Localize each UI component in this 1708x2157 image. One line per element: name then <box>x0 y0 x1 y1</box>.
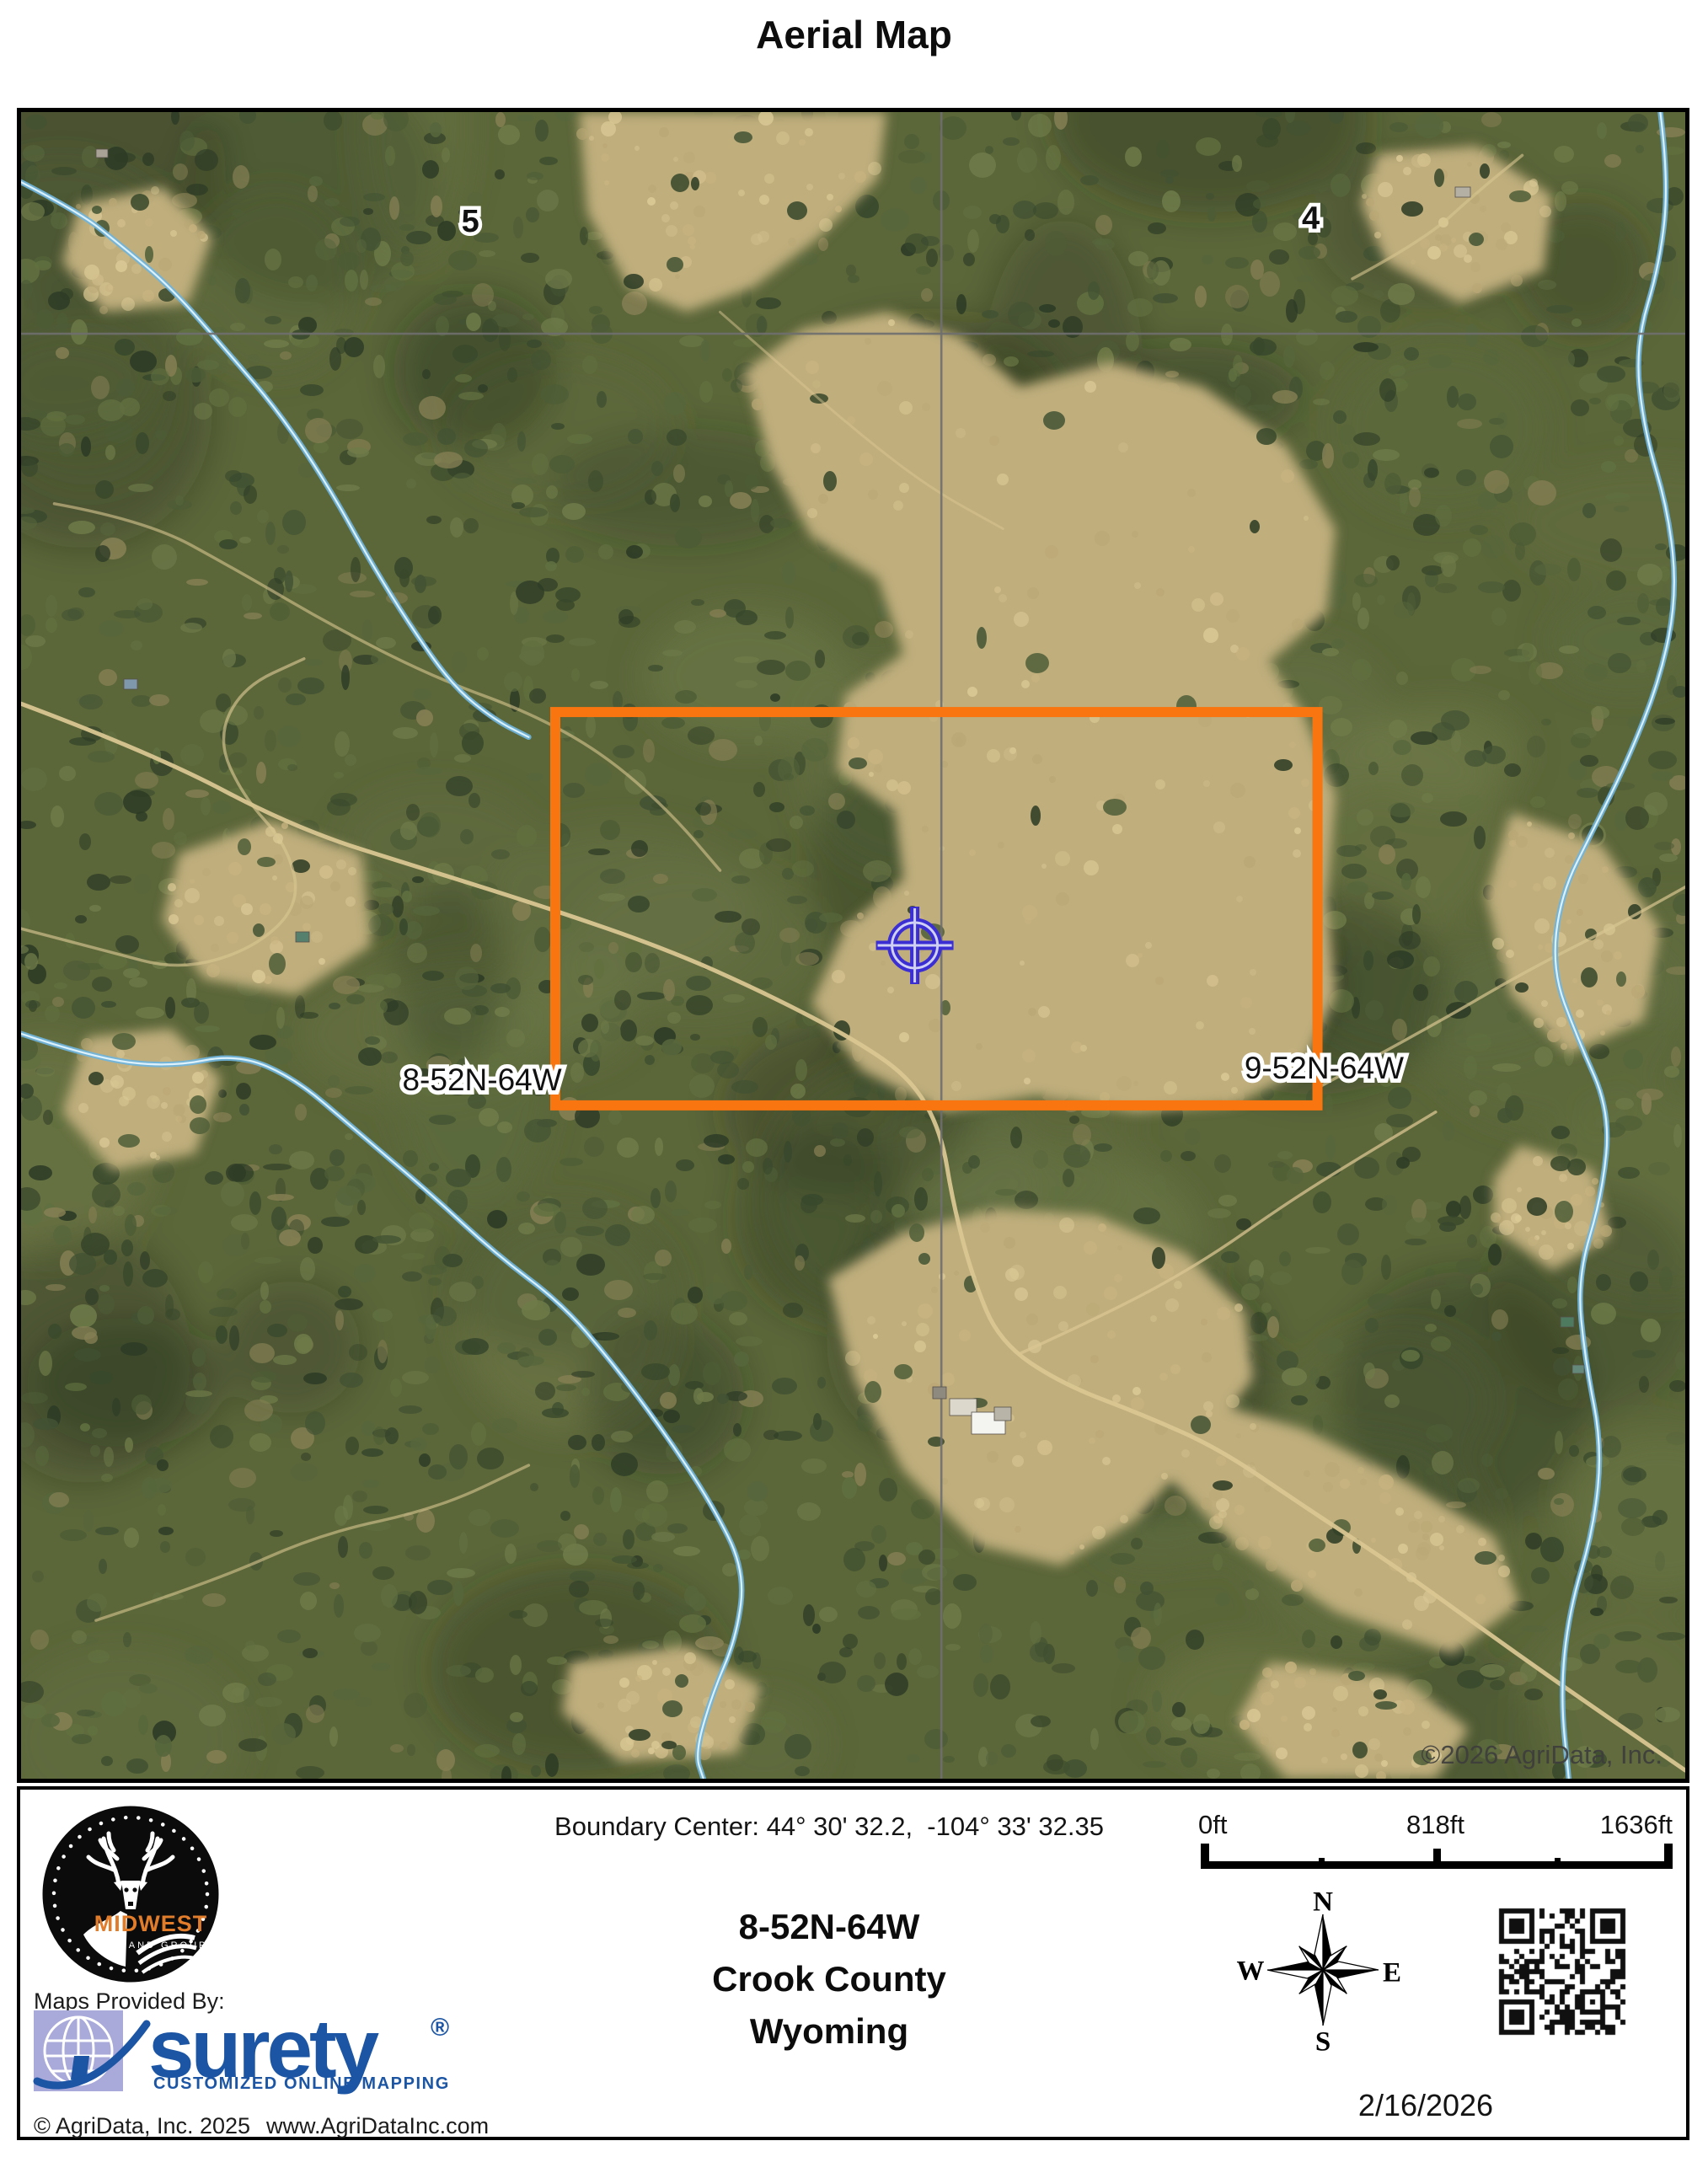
surety-logo-globe <box>34 2009 152 2093</box>
section-number-4: 4 <box>1302 201 1320 237</box>
compass-star-icon <box>1260 1907 1386 2033</box>
scale-label-middle: 818ft <box>1406 1810 1464 1840</box>
globe-icon <box>34 2010 147 2091</box>
agridata-copyright: © AgriData, Inc. 2025 <box>34 2113 250 2139</box>
compass-rose: N W E S <box>1205 1887 1404 2064</box>
county-label: Crook County <box>492 1953 1166 2005</box>
scale-labels: 0ft 818ft 1636ft <box>1198 1810 1673 1839</box>
map-watermark: ©2026 AgriData, Inc. <box>1421 1740 1662 1769</box>
agridata-website: www.AgriDataInc.com <box>266 2113 489 2139</box>
township-range-label: 9-52N-64W <box>1245 1051 1404 1085</box>
footer: MIDWEST LAND GROUP Maps Provided By: sur… <box>17 1786 1689 2140</box>
boundary-center-label: Boundary Center: 44° 30' 32.2, -104° 33'… <box>408 1812 1250 1842</box>
page-title: Aerial Map <box>0 12 1708 57</box>
scale-label-end: 1636ft <box>1600 1810 1673 1840</box>
section-number-5: 5 <box>462 204 479 239</box>
surety-tagline: CUSTOMIZED ONLINE MAPPING <box>153 2074 450 2094</box>
state-label: Wyoming <box>492 2005 1166 2058</box>
registered-trademark-symbol: ® <box>431 2014 449 2042</box>
township-range-label: 8-52N-64W <box>402 1062 561 1097</box>
location-title-block: 8-52N-64W Crook County Wyoming <box>492 1901 1166 2058</box>
midwest-land-group-logo: MIDWEST LAND GROUP <box>40 1803 222 1985</box>
aerial-map: 548-52N-64W9-52N-64W©2026 AgriData, Inc. <box>17 108 1689 1783</box>
map-canvas: 548-52N-64W9-52N-64W©2026 AgriData, Inc. <box>21 112 1685 1779</box>
township-label: 8-52N-64W <box>492 1901 1166 1953</box>
scale-label-start: 0ft <box>1198 1810 1227 1840</box>
scale-bar <box>1201 1844 1673 1869</box>
qr-code <box>1493 1903 1631 2041</box>
midwest-wordmark: MIDWEST <box>94 1911 208 1936</box>
midwest-subtitle: LAND GROUP <box>121 1940 208 1951</box>
map-date: 2/16/2026 <box>1325 2088 1527 2123</box>
